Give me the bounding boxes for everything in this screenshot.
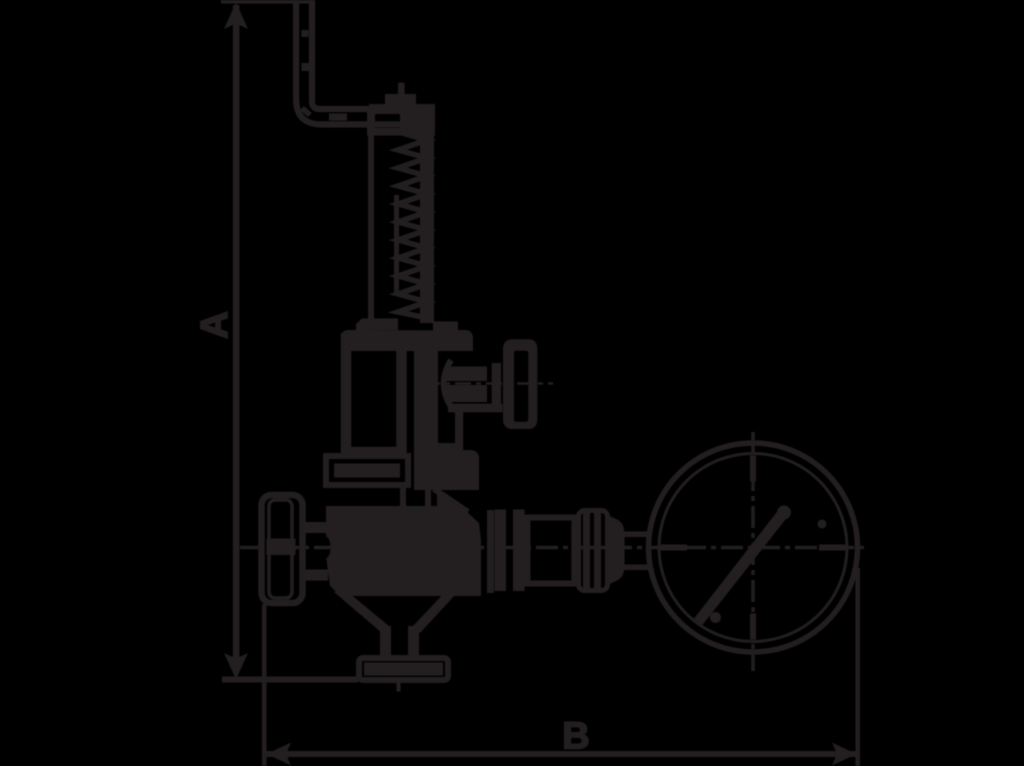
svg-text:B: B xyxy=(562,716,589,758)
svg-text:A: A xyxy=(194,311,236,338)
